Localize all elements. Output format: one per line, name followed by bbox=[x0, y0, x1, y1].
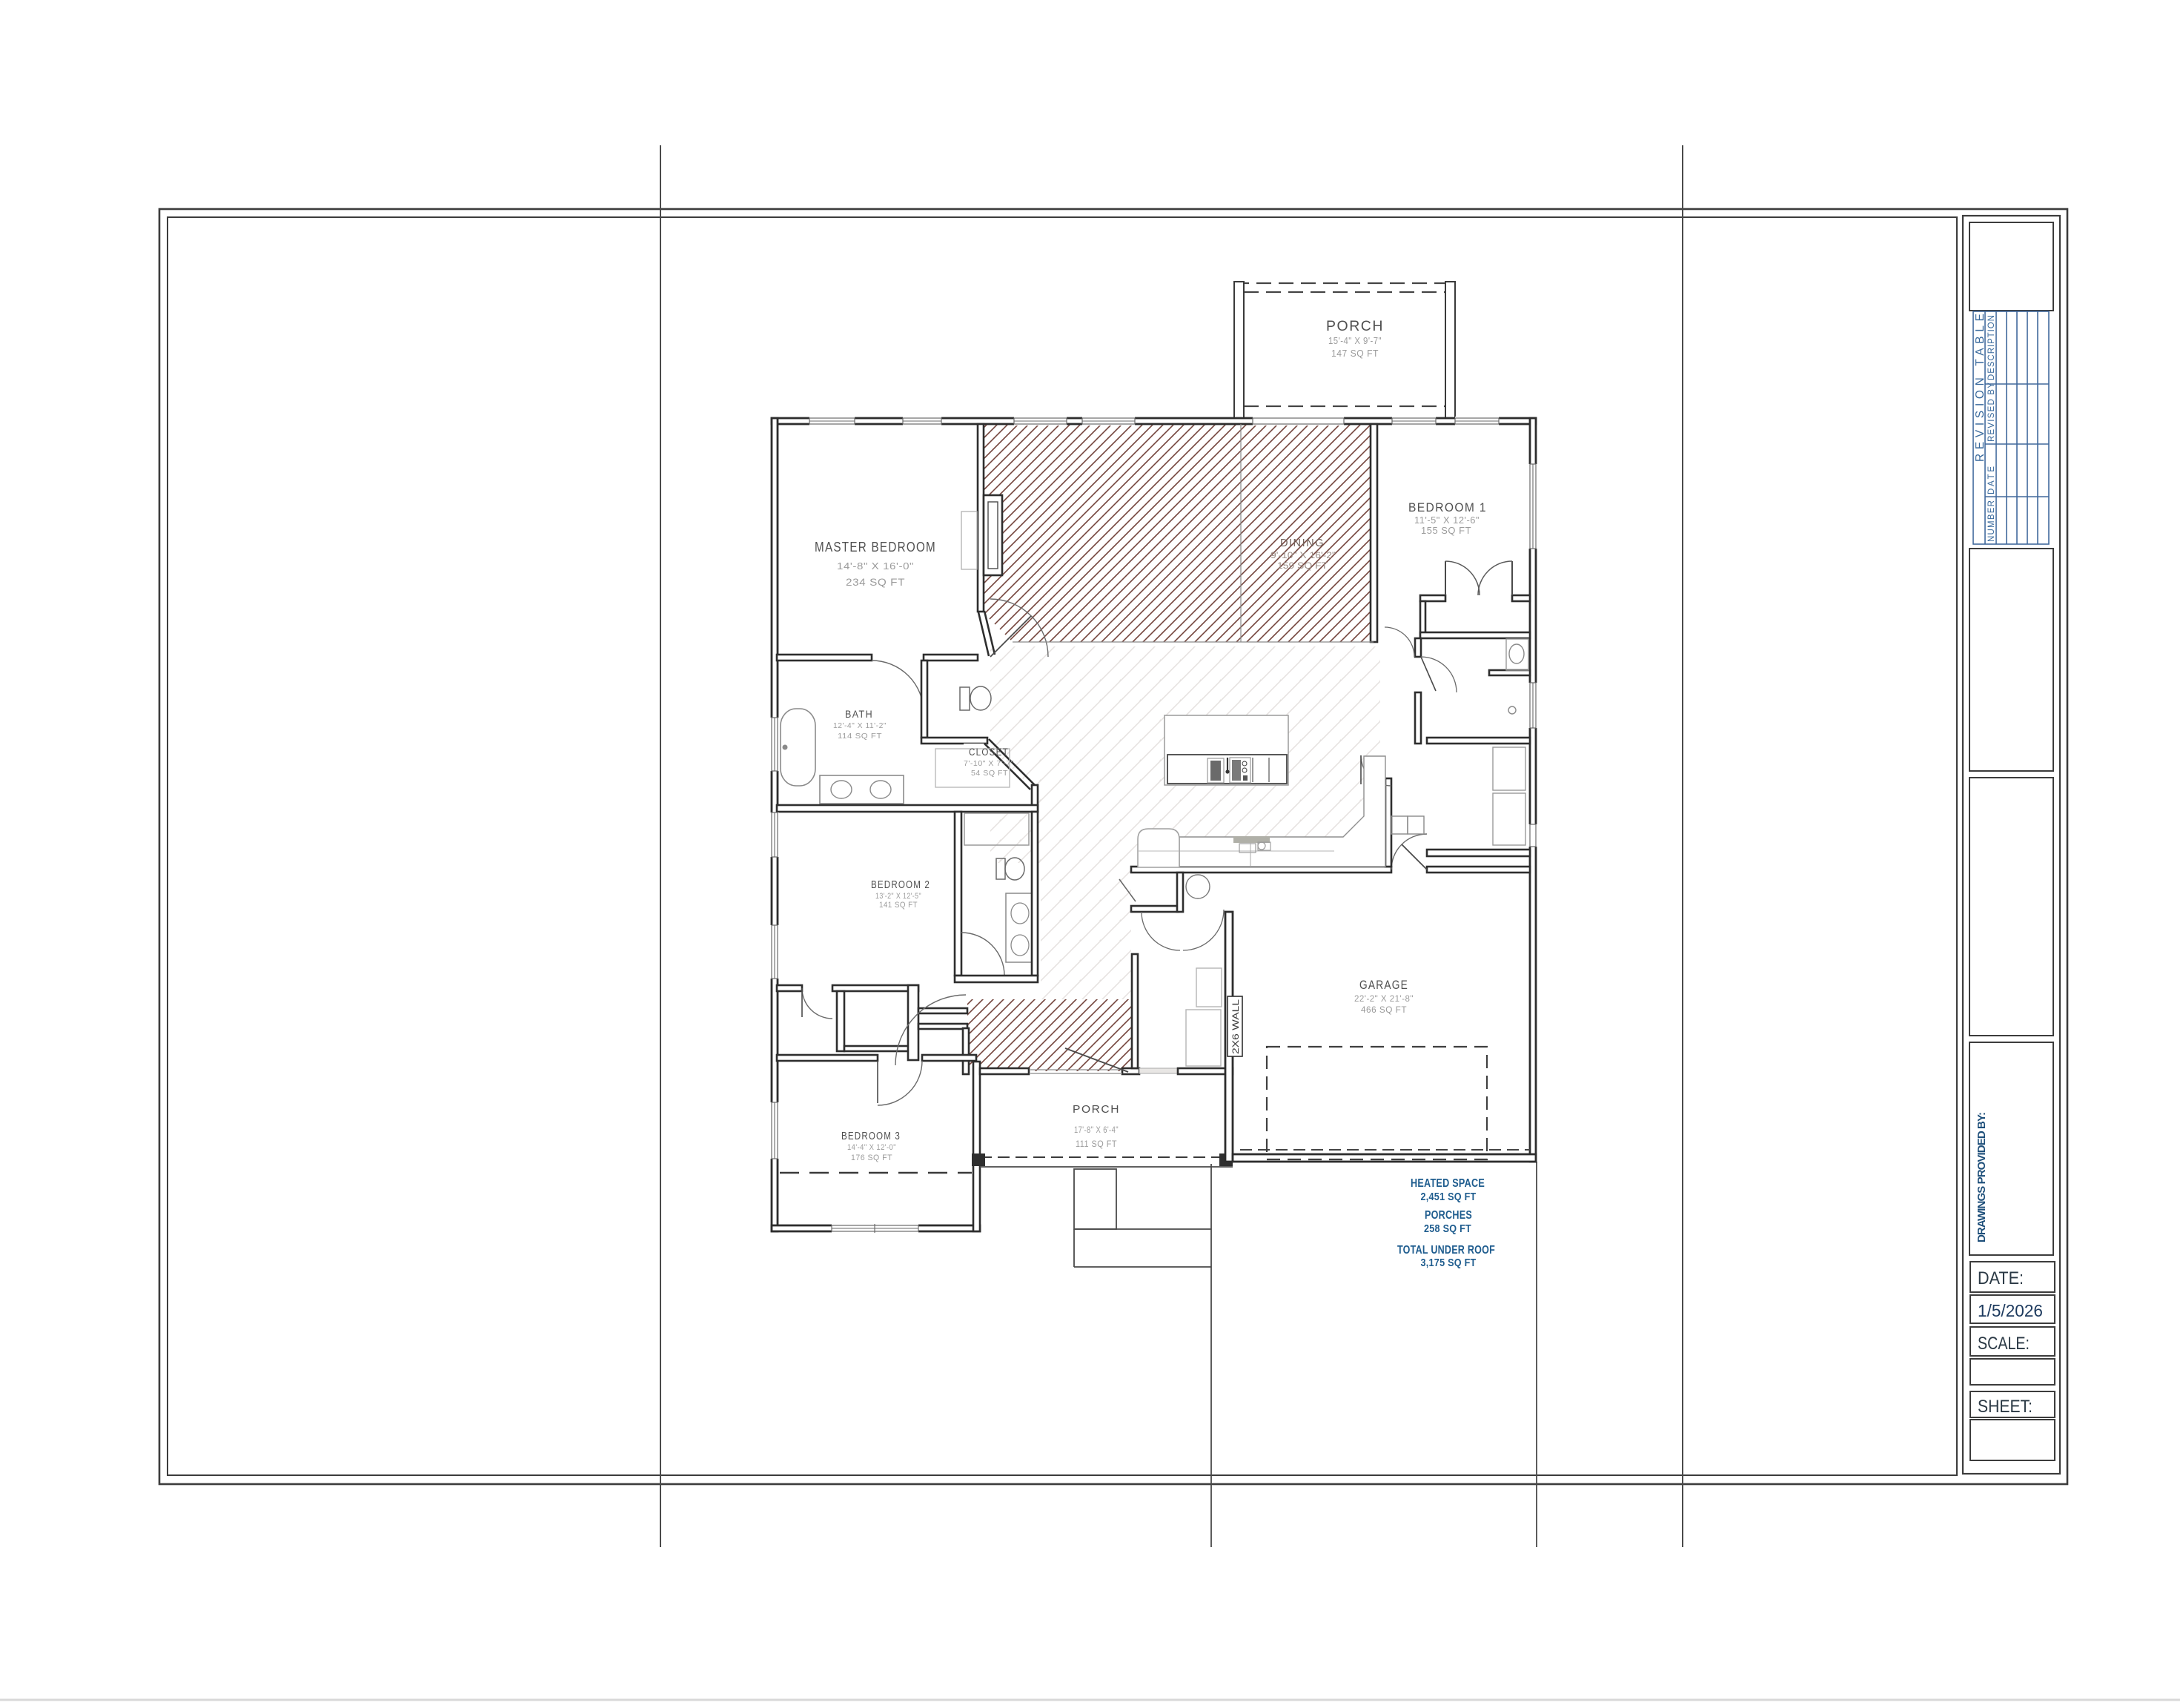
svg-text:2,451 SQ FT: 2,451 SQ FT bbox=[1421, 1191, 1477, 1203]
svg-text:14'-4" X 12'-0": 14'-4" X 12'-0" bbox=[847, 1143, 896, 1152]
svg-text:PORCHES: PORCHES bbox=[1425, 1209, 1472, 1222]
svg-text:22'-2" X 21'-8": 22'-2" X 21'-8" bbox=[1354, 993, 1414, 1004]
svg-text:141 SQ FT: 141 SQ FT bbox=[879, 901, 918, 910]
svg-text:15'-4" X 9'-7": 15'-4" X 9'-7" bbox=[1328, 336, 1382, 346]
svg-text:PORCH: PORCH bbox=[1073, 1103, 1120, 1116]
svg-text:54 SQ FT: 54 SQ FT bbox=[971, 769, 1008, 778]
svg-text:176 SQ FT: 176 SQ FT bbox=[851, 1153, 892, 1162]
svg-text:3,175 SQ FT: 3,175 SQ FT bbox=[1421, 1257, 1477, 1269]
svg-text:17'-8" X 6'-4": 17'-8" X 6'-4" bbox=[1074, 1126, 1119, 1135]
svg-text:159 SQ FT: 159 SQ FT bbox=[1277, 560, 1328, 571]
svg-text:11'-5" X 12'-6": 11'-5" X 12'-6" bbox=[1414, 515, 1480, 526]
svg-text:BATH: BATH bbox=[845, 709, 873, 720]
svg-text:HEATED SPACE: HEATED SPACE bbox=[1411, 1177, 1485, 1190]
svg-text:TOTAL UNDER ROOF: TOTAL UNDER ROOF bbox=[1397, 1244, 1495, 1257]
svg-text:DRAWINGS PROVIDED BY:: DRAWINGS PROVIDED BY: bbox=[1975, 1112, 1988, 1242]
svg-text:111 SQ FT: 111 SQ FT bbox=[1076, 1140, 1117, 1149]
svg-text:SCALE:: SCALE: bbox=[1978, 1334, 2030, 1354]
svg-text:CLOSET: CLOSET bbox=[969, 747, 1009, 758]
svg-text:BEDROOM 1: BEDROOM 1 bbox=[1408, 500, 1487, 514]
svg-text:BEDROOM 3: BEDROOM 3 bbox=[841, 1130, 901, 1142]
svg-text:114 SQ FT: 114 SQ FT bbox=[838, 732, 882, 741]
svg-text:13'-2" X 12'-5": 13'-2" X 12'-5" bbox=[875, 892, 921, 901]
svg-text:BEDROOM 2: BEDROOM 2 bbox=[871, 878, 930, 891]
svg-text:DESCRIPTION: DESCRIPTION bbox=[1987, 315, 1996, 380]
svg-text:REVISED BY: REVISED BY bbox=[1987, 383, 1996, 442]
svg-text:1/5/2026: 1/5/2026 bbox=[1978, 1301, 2043, 1320]
svg-text:14'-8" X 16'-0": 14'-8" X 16'-0" bbox=[837, 560, 914, 572]
svg-text:GARAGE: GARAGE bbox=[1359, 978, 1408, 992]
svg-text:7'-10" X 7'-7": 7'-10" X 7'-7" bbox=[964, 759, 1014, 768]
svg-text:466 SQ FT: 466 SQ FT bbox=[1361, 1004, 1407, 1015]
svg-text:234 SQ FT: 234 SQ FT bbox=[846, 577, 905, 588]
svg-text:12'-4" X 11'-2": 12'-4" X 11'-2" bbox=[833, 721, 887, 730]
svg-text:DATE:: DATE: bbox=[1978, 1268, 2024, 1288]
svg-text:9'-10" X 16'-2": 9'-10" X 16'-2" bbox=[1270, 550, 1336, 560]
svg-text:155 SQ FT: 155 SQ FT bbox=[1421, 526, 1471, 536]
svg-text:MASTER BEDROOM: MASTER BEDROOM bbox=[815, 540, 936, 555]
svg-text:258 SQ FT: 258 SQ FT bbox=[1424, 1222, 1471, 1235]
svg-text:PORCH: PORCH bbox=[1326, 319, 1384, 334]
svg-text:2X6 WALL: 2X6 WALL bbox=[1232, 999, 1241, 1054]
svg-text:SHEET:: SHEET: bbox=[1978, 1397, 2032, 1417]
svg-text:147 SQ FT: 147 SQ FT bbox=[1331, 348, 1379, 359]
svg-text:DINING: DINING bbox=[1280, 537, 1325, 549]
